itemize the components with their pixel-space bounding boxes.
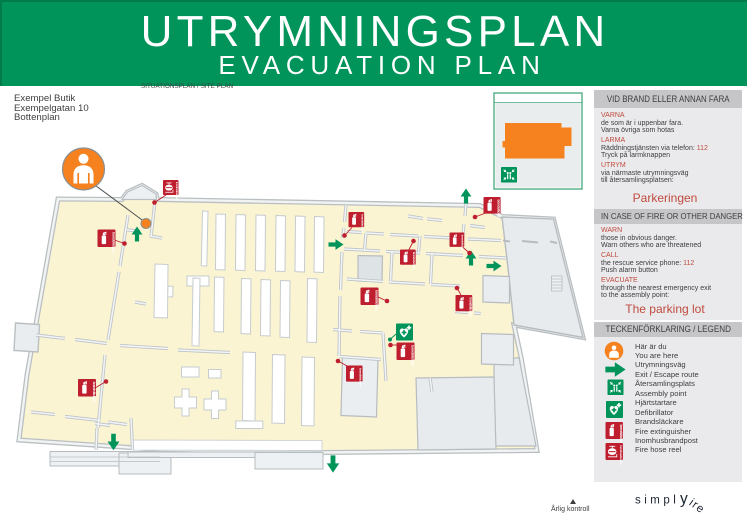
svg-text:ire: ire (687, 497, 707, 516)
svg-text:simpl: simpl (635, 495, 679, 507)
